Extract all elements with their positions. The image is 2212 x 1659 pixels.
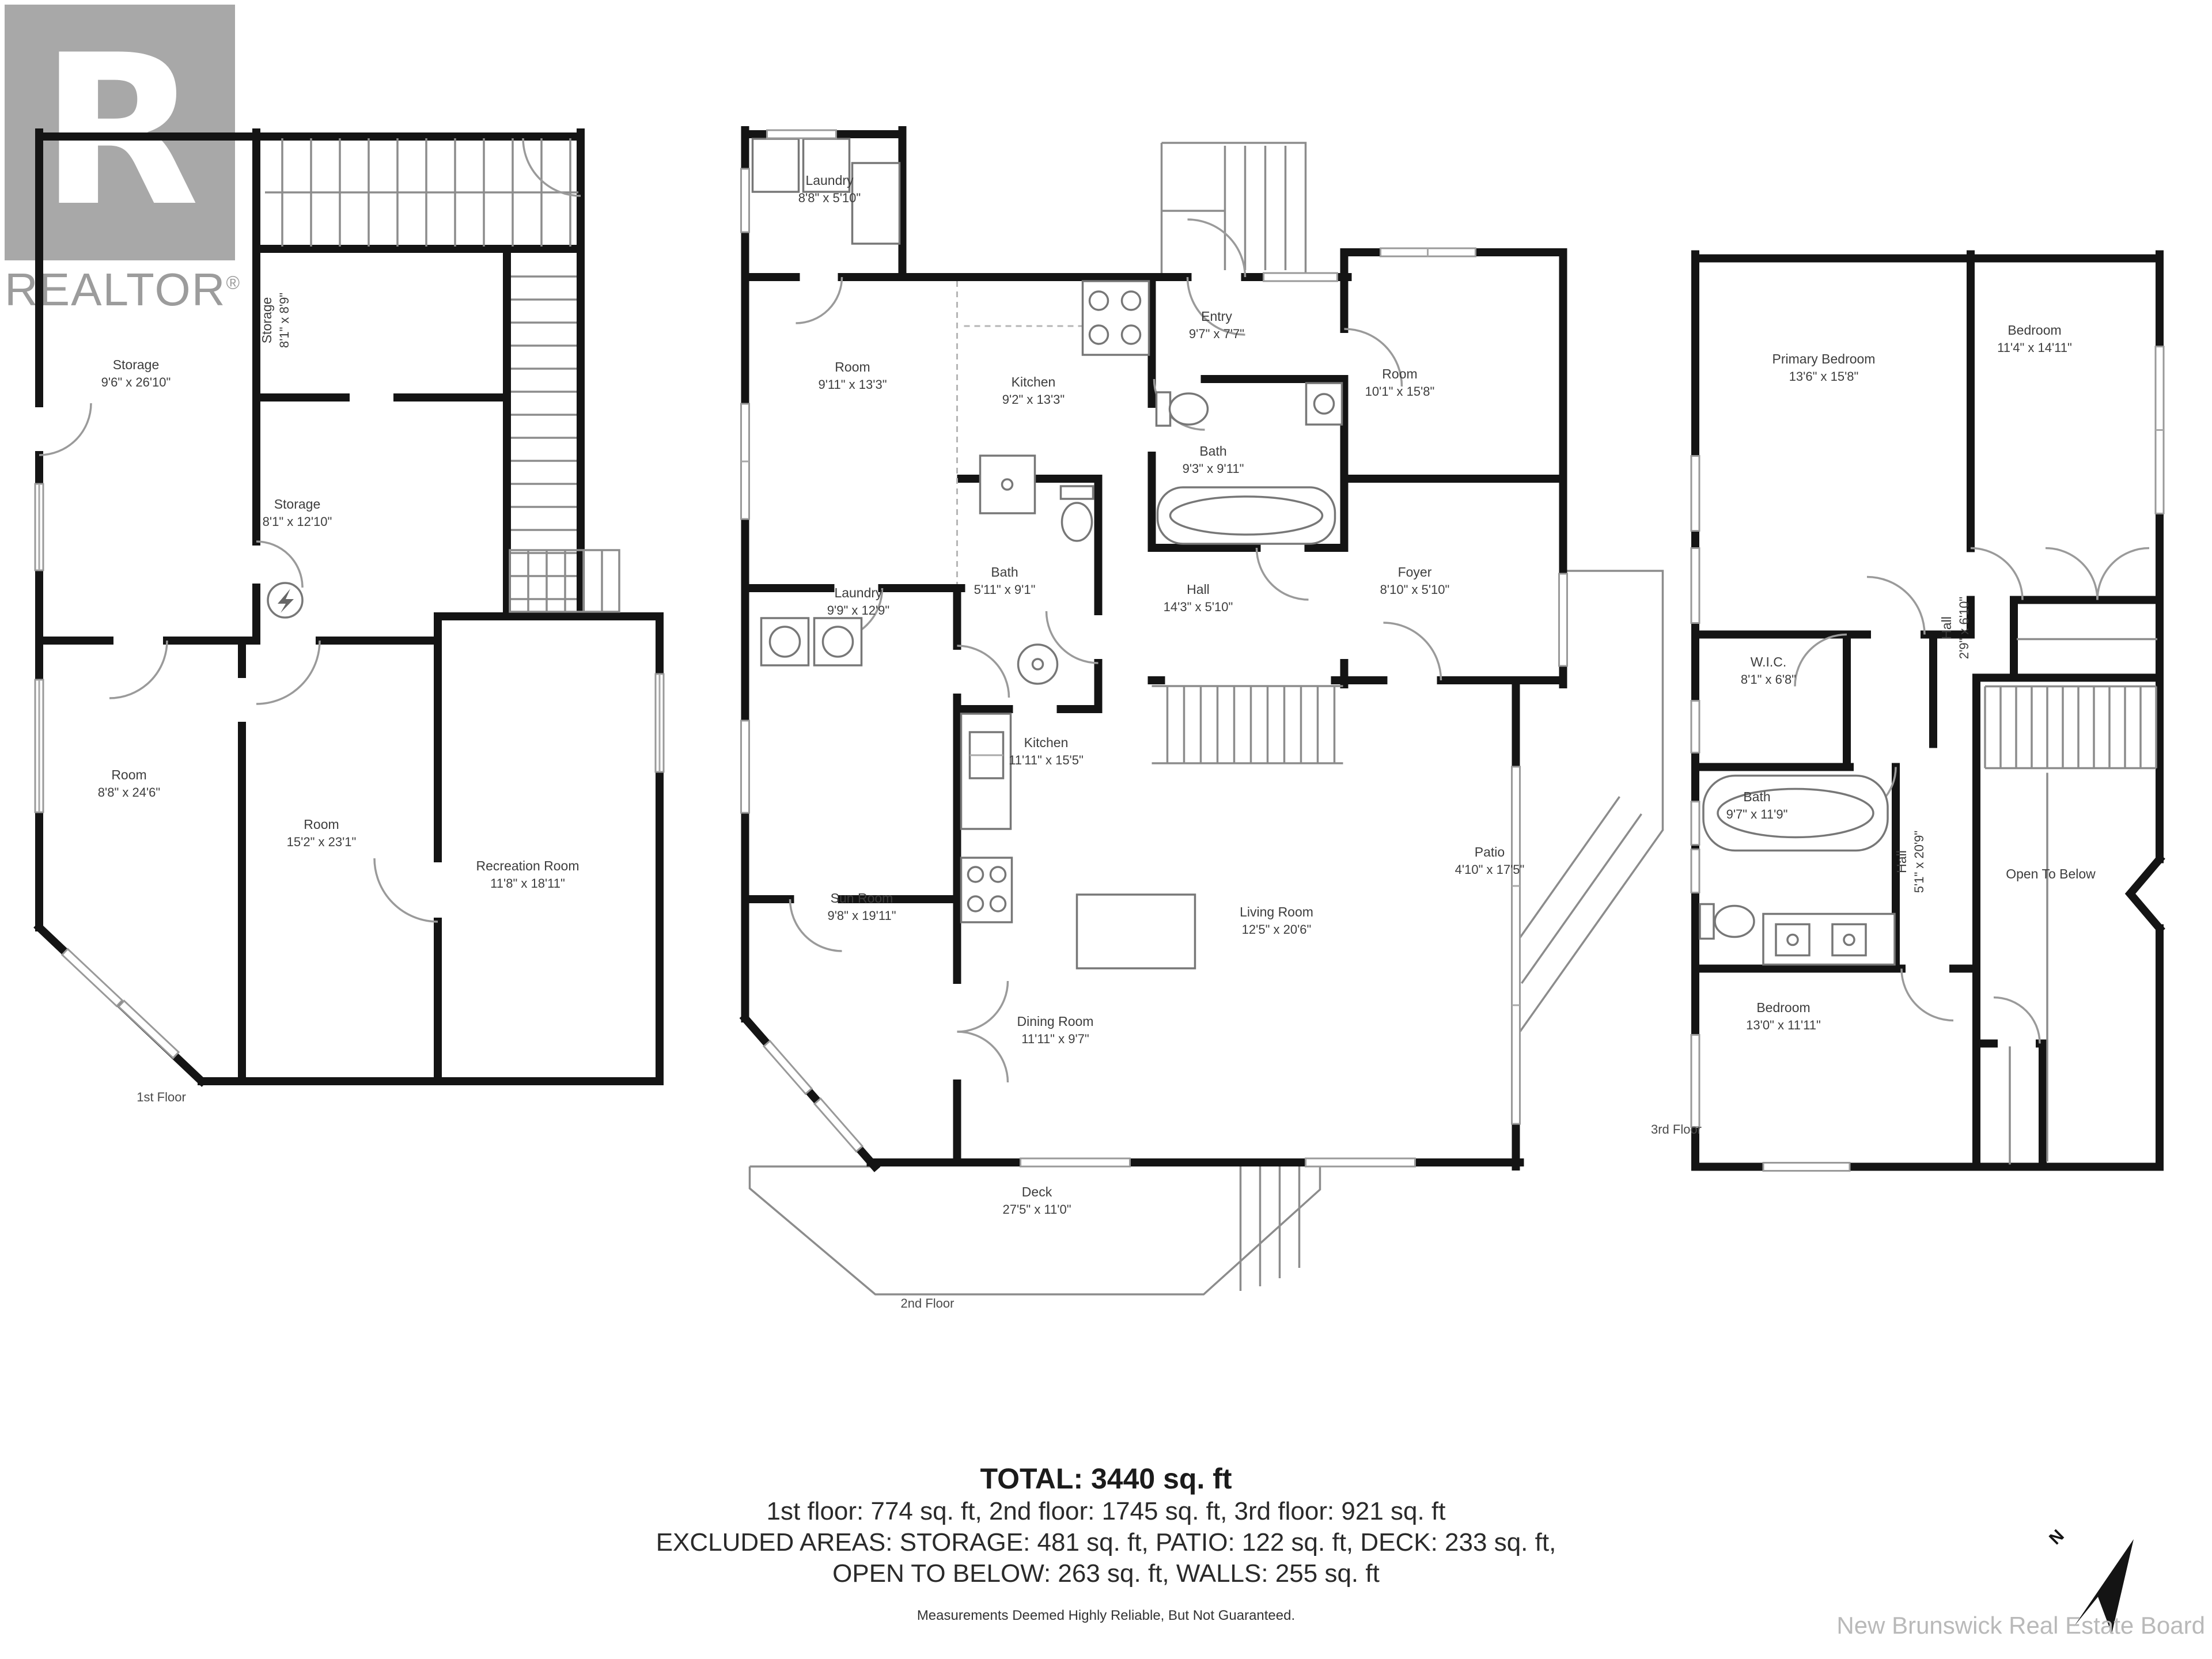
room-label-open-to-below: Open To Below	[2006, 867, 2096, 884]
room-label-primary-bedroom: Primary Bedroom13'6" x 15'8"	[1772, 352, 1876, 385]
floor3-stairs-railing	[1985, 639, 2157, 1165]
room-label-storage-2: Storage8'1" x 8'9"	[260, 293, 293, 348]
floor1-walls	[39, 132, 660, 1081]
floor2-stairs	[1152, 143, 1343, 763]
room-label-bedroom-130: Bedroom13'0" x 11'11"	[1746, 1001, 1821, 1034]
room-label-storage-1: Storage9'6" x 26'10"	[101, 358, 171, 391]
floor3-plan	[1645, 211, 2181, 1176]
excluded-areas-2: OPEN TO BELOW: 263 sq. ft, WALLS: 255 sq…	[0, 1558, 2212, 1589]
room-label-sunroom: Sun Room9'8" x 19'11"	[827, 891, 896, 925]
room-label-bath-93: Bath9'3" x 9'11"	[1183, 444, 1244, 478]
floor2-plan	[724, 113, 1683, 1363]
room-label-room-1: Room8'8" x 24'6"	[98, 768, 160, 801]
room-label-dining: Dining Room11'11" x 9'7"	[1017, 1014, 1094, 1048]
room-label-room-2: Room15'2" x 23'1"	[287, 817, 357, 851]
room-label-kitchen-92: Kitchen9'2" x 13'3"	[1002, 375, 1065, 408]
room-label-hall-51: Hall5'1" x 20'9"	[1895, 831, 1928, 893]
floor1-stairs	[265, 138, 619, 612]
floor2-fixtures	[753, 139, 1342, 968]
room-label-wic: W.I.C.8'1" x 6'8"	[1741, 655, 1796, 688]
floor2-label: 2nd Floor	[901, 1297, 955, 1311]
floor3-windows	[1691, 347, 2164, 1171]
area-summary: TOTAL: 3440 sq. ft 1st floor: 774 sq. ft…	[0, 1463, 2212, 1623]
room-label-entry: Entry9'7" x 7'7"	[1189, 309, 1244, 343]
room-label-patio: Patio4'10" x 17'5"	[1455, 845, 1525, 878]
room-label-bath-97: Bath9'7" x 11'9"	[1726, 790, 1788, 823]
room-label-deck: Deck27'5" x 11'0"	[1002, 1185, 1071, 1218]
room-label-room-101: Room10'1" x 15'8"	[1365, 367, 1435, 400]
excluded-areas-1: EXCLUDED AREAS: STORAGE: 481 sq. ft, PAT…	[0, 1527, 2212, 1558]
room-label-laundry-top: Laundry8'8" x 5'10"	[798, 173, 861, 207]
floor-areas: 1st floor: 774 sq. ft, 2nd floor: 1745 s…	[0, 1495, 2212, 1527]
floorplan-page: R REALTOR®	[0, 0, 2212, 1659]
floor1-plan	[12, 121, 674, 1112]
floor1-electrical-panel-icon	[268, 583, 302, 618]
floor1-label: 1st Floor	[137, 1091, 186, 1105]
room-label-kitchen-1111: Kitchen11'11" x 15'5"	[1009, 736, 1084, 769]
room-label-foyer: Foyer8'10" x 5'10"	[1380, 565, 1450, 599]
room-label-hall-143: Hall14'3" x 5'10"	[1164, 582, 1233, 616]
room-label-laundry-99: Laundry9'9" x 12'9"	[827, 586, 889, 619]
total-area: TOTAL: 3440 sq. ft	[0, 1463, 2212, 1495]
room-label-bedroom-114: Bedroom11'4" x 14'11"	[1997, 323, 2072, 357]
room-label-recreation: Recreation Room11'8" x 18'11"	[476, 859, 579, 892]
room-label-storage-3: Storage8'1" x 12'10"	[263, 497, 332, 531]
floor2-walls	[745, 130, 1563, 1166]
room-label-hall-29: Hall2'9" x 6'10"	[1940, 597, 1973, 659]
room-label-room-911: Room9'11" x 13'3"	[818, 360, 887, 393]
board-credit: New Brunswick Real Estate Board	[1836, 1613, 2205, 1641]
room-label-living: Living Room12'5" x 20'6"	[1240, 905, 1313, 938]
room-label-bath-511: Bath5'11" x 9'1"	[974, 565, 1036, 599]
floor3-label: 3rd Floor	[1651, 1123, 1702, 1137]
